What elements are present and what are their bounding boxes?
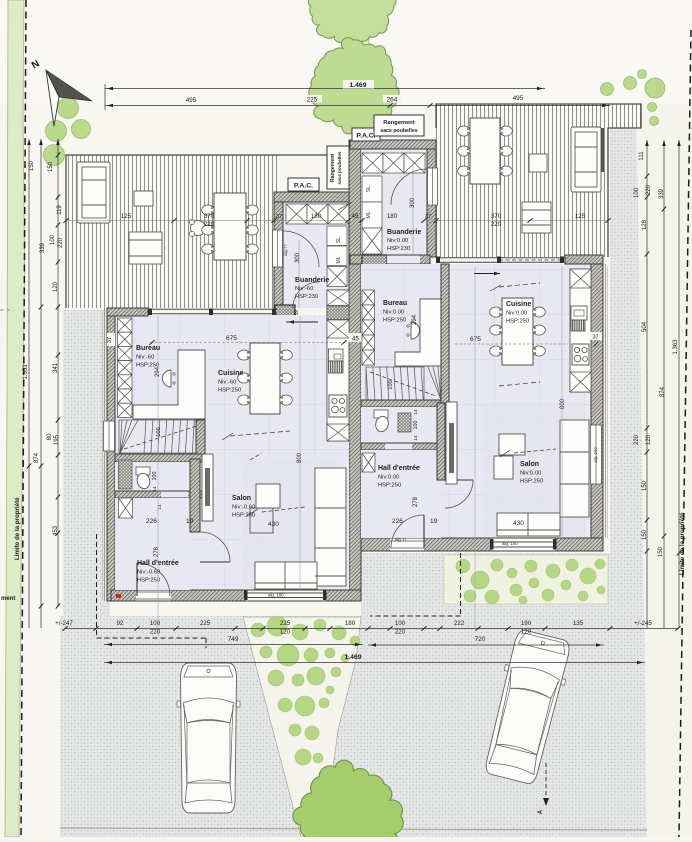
svg-text:Bureau: Bureau — [136, 345, 160, 352]
svg-text:100: 100 — [152, 472, 158, 481]
svg-text:220: 220 — [491, 221, 502, 228]
svg-text:1.469: 1.469 — [344, 654, 361, 661]
svg-text:119: 119 — [57, 205, 63, 215]
svg-text:Buanderie: Buanderie — [387, 229, 421, 236]
svg-text:180: 180 — [387, 213, 398, 220]
svg-text:Bureau: Bureau — [383, 300, 407, 307]
svg-text:37: 37 — [107, 337, 113, 343]
svg-text:195: 195 — [54, 434, 60, 445]
svg-text:495: 495 — [186, 97, 197, 104]
svg-text:sacs poubelles: sacs poubelles — [337, 151, 342, 184]
svg-text:Niv:0.00: Niv:0.00 — [520, 471, 541, 477]
svg-text:14: 14 — [413, 409, 419, 415]
svg-text:Limite de la propriété: Limite de la propriété — [14, 497, 21, 560]
svg-text:180: 180 — [345, 620, 356, 627]
svg-text:HSP:230: HSP:230 — [387, 246, 410, 252]
svg-text:874: 874 — [660, 386, 666, 397]
svg-text:222: 222 — [454, 620, 465, 627]
svg-text:125: 125 — [575, 213, 586, 220]
svg-text:225: 225 — [307, 97, 318, 104]
svg-text:339: 339 — [659, 188, 665, 199]
svg-text:341: 341 — [53, 362, 59, 373]
svg-text:Limite de la propriété: Limite de la propriété — [679, 512, 686, 575]
svg-text:ment: ment — [1, 596, 15, 602]
svg-text:220: 220 — [58, 237, 64, 248]
svg-text:45: 45 — [352, 336, 359, 343]
svg-text:225: 225 — [280, 620, 291, 627]
svg-text:HSP:250: HSP:250 — [520, 479, 543, 485]
svg-text:Niv:-0.60: Niv:-0.60 — [137, 570, 160, 576]
svg-text:504: 504 — [642, 321, 648, 332]
svg-text:220: 220 — [634, 434, 640, 445]
svg-text:220: 220 — [150, 629, 161, 636]
svg-text:alg. 0: alg. 0 — [395, 537, 406, 542]
svg-text:A: A — [538, 809, 544, 814]
svg-text:Niv:0.00: Niv:0.00 — [506, 311, 527, 317]
svg-text:278: 278 — [154, 546, 160, 557]
svg-text:100: 100 — [395, 620, 406, 627]
svg-text:Niv:-0.60: Niv:-0.60 — [232, 505, 255, 511]
svg-text:370: 370 — [204, 213, 215, 220]
svg-text:120: 120 — [280, 629, 291, 636]
svg-text:135: 135 — [573, 620, 584, 627]
svg-text:Salon: Salon — [520, 461, 539, 468]
svg-text:226: 226 — [146, 518, 157, 525]
svg-text:P.A.C.: P.A.C. — [356, 133, 375, 140]
svg-text:37: 37 — [276, 214, 282, 220]
svg-text:294: 294 — [412, 314, 418, 325]
svg-text:Niv:0.00: Niv:0.00 — [378, 475, 399, 481]
svg-text:111: 111 — [639, 151, 645, 161]
svg-text:sacs poubelles: sacs poubelles — [380, 128, 417, 134]
svg-text:225: 225 — [200, 620, 211, 627]
svg-text:370: 370 — [491, 213, 502, 220]
svg-text:SL: SL — [366, 186, 372, 192]
svg-text:100: 100 — [413, 421, 419, 430]
svg-text:HSP:250: HSP:250 — [378, 483, 401, 489]
svg-text:120: 120 — [53, 281, 59, 292]
svg-text:alg. 100: alg. 100 — [502, 541, 518, 546]
svg-text:Niv:-60: Niv:-60 — [218, 380, 236, 386]
svg-text:ML: ML — [336, 256, 342, 263]
svg-text:Cuisine: Cuisine — [218, 370, 243, 377]
svg-text:150: 150 — [658, 546, 664, 557]
svg-text:150: 150 — [642, 529, 648, 540]
svg-text:Hall d'entrée: Hall d'entrée — [378, 465, 420, 472]
svg-text:430: 430 — [513, 520, 524, 527]
svg-text:150: 150 — [642, 480, 648, 491]
svg-text:1.363: 1.363 — [673, 339, 679, 355]
svg-text:HSP:250: HSP:250 — [218, 388, 241, 394]
svg-text:125: 125 — [121, 213, 132, 220]
svg-text:alg. 100: alg. 100 — [268, 593, 284, 598]
svg-text:264: 264 — [387, 97, 398, 104]
svg-text:190: 190 — [521, 620, 532, 627]
svg-text:45: 45 — [352, 213, 359, 220]
svg-text:14: 14 — [413, 435, 419, 441]
svg-text:220: 220 — [395, 629, 406, 636]
svg-text:278: 278 — [413, 496, 419, 507]
svg-text:226: 226 — [392, 518, 403, 525]
svg-text:19: 19 — [430, 518, 438, 525]
svg-text:120: 120 — [521, 629, 532, 636]
svg-text:Cuisine: Cuisine — [506, 301, 531, 308]
svg-text:Niv:-60: Niv:-60 — [295, 286, 313, 292]
svg-text:106: 106 — [156, 427, 162, 437]
svg-text:495: 495 — [513, 95, 524, 102]
svg-text:100: 100 — [50, 234, 56, 245]
svg-text:alg:77: alg:77 — [283, 243, 288, 256]
svg-text:SL: SL — [336, 237, 342, 243]
svg-text:92: 92 — [117, 620, 124, 627]
svg-text:800: 800 — [560, 398, 566, 409]
svg-text:80: 80 — [47, 433, 53, 440]
svg-text:Rangement: Rangement — [383, 120, 415, 126]
svg-text:37: 37 — [592, 335, 598, 341]
svg-text:339: 339 — [40, 242, 46, 253]
svg-text:Niv:-60: Niv:-60 — [136, 355, 154, 361]
svg-text:300: 300 — [295, 252, 301, 263]
svg-text:HSP:250: HSP:250 — [383, 318, 406, 324]
svg-text:1.469: 1.469 — [349, 82, 366, 89]
svg-text:675: 675 — [470, 336, 481, 343]
svg-text:Buanderie: Buanderie — [295, 277, 329, 284]
svg-text:874: 874 — [34, 452, 40, 463]
svg-text:HSP:230: HSP:230 — [295, 294, 318, 300]
svg-text:37: 37 — [425, 214, 431, 220]
svg-text:453: 453 — [53, 525, 59, 536]
svg-text:Niv:0.00: Niv:0.00 — [383, 310, 404, 316]
svg-text:+/-245: +/-245 — [634, 620, 652, 627]
svg-text:150: 150 — [48, 161, 54, 172]
svg-text:749: 749 — [228, 636, 239, 643]
svg-text:Niv:0.00: Niv:0.00 — [387, 238, 408, 244]
svg-text:100: 100 — [634, 187, 640, 198]
svg-text:720: 720 — [475, 636, 486, 643]
svg-text:alg. 100: alg. 100 — [593, 447, 598, 463]
svg-text:HSP:250: HSP:250 — [506, 319, 529, 325]
svg-text:Salon: Salon — [232, 495, 251, 502]
svg-text:+/-247: +/-247 — [55, 620, 73, 627]
svg-text:19: 19 — [186, 518, 194, 525]
svg-text:675: 675 — [226, 335, 237, 342]
svg-text:128: 128 — [642, 219, 648, 230]
svg-text:P.A.C.: P.A.C. — [294, 183, 313, 190]
svg-text:1.353: 1.353 — [23, 364, 29, 380]
svg-text:120: 120 — [646, 434, 652, 445]
svg-text:430: 430 — [268, 521, 279, 528]
svg-text:220: 220 — [204, 221, 215, 228]
svg-text:ML: ML — [366, 211, 372, 218]
svg-text:150: 150 — [29, 160, 35, 171]
svg-text:100: 100 — [150, 620, 161, 627]
svg-text:100: 100 — [388, 380, 394, 390]
svg-text:220: 220 — [646, 184, 652, 195]
svg-text:Rangement: Rangement — [330, 154, 336, 183]
svg-text:HSP:250: HSP:250 — [137, 578, 160, 584]
svg-text:180: 180 — [311, 213, 322, 220]
